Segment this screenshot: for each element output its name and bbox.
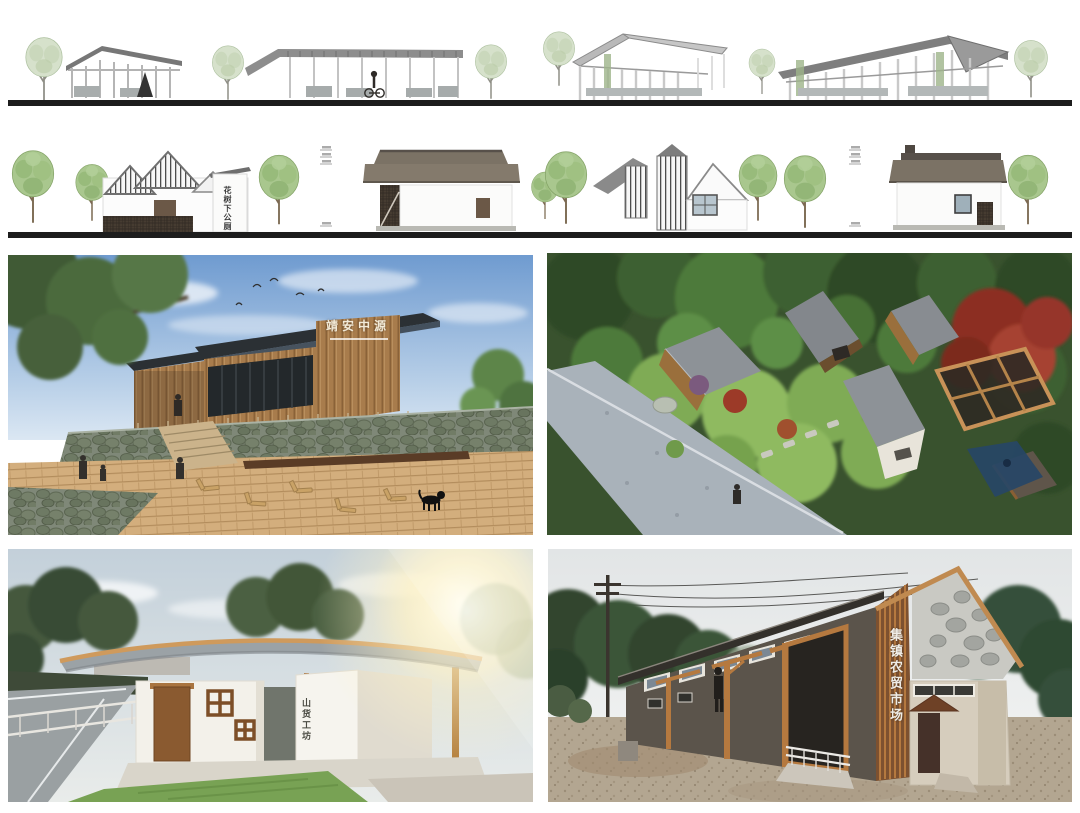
person-silhouette <box>174 394 182 416</box>
figure-silhouette <box>137 72 153 97</box>
visitor-center-sign-subtitle-line <box>330 338 388 340</box>
render-aerial-cabins <box>547 253 1072 535</box>
ground-line <box>8 232 1072 238</box>
green-trellis <box>604 54 611 92</box>
tree-icon <box>26 38 62 101</box>
garden-stone <box>653 397 677 413</box>
elevation-strip-pavilions <box>8 10 1072 108</box>
tree-icon <box>12 151 53 223</box>
tree-icon <box>212 46 243 100</box>
tree-icon <box>545 152 586 224</box>
tree-icon <box>749 49 775 94</box>
sign-gable <box>316 315 400 423</box>
level-marks <box>320 146 332 226</box>
right-end-volume <box>910 681 1010 793</box>
side-door <box>918 713 940 773</box>
tree-icon <box>1008 155 1048 224</box>
render-toilet-pavilion <box>8 549 533 802</box>
pavilion-elevation-left <box>26 38 507 101</box>
toilet-elevation-front <box>12 151 299 232</box>
lattice-fence <box>103 216 193 232</box>
toilet-elevation-rear <box>593 144 747 230</box>
toilet-elevation-side <box>363 150 520 231</box>
tree-icon <box>543 32 574 86</box>
pavilion-perspective-right <box>543 32 1047 100</box>
ground-line <box>8 100 1072 106</box>
tree-icon <box>1015 40 1048 97</box>
pedestrian <box>733 484 741 504</box>
tree-icon <box>259 155 299 224</box>
render-visitor-center <box>8 255 533 535</box>
level-marks <box>849 146 861 226</box>
tree-icon <box>784 156 825 228</box>
presentation-board: 花树下公厕 靖安中源 山货工坊 集镇农贸市场 <box>0 0 1080 813</box>
tree-icon <box>475 45 506 99</box>
left-steps <box>618 741 638 761</box>
elevation-strip-buildings <box>8 136 1072 240</box>
door <box>154 687 190 761</box>
small-house-elevation <box>889 145 1007 230</box>
render-market <box>548 549 1072 802</box>
